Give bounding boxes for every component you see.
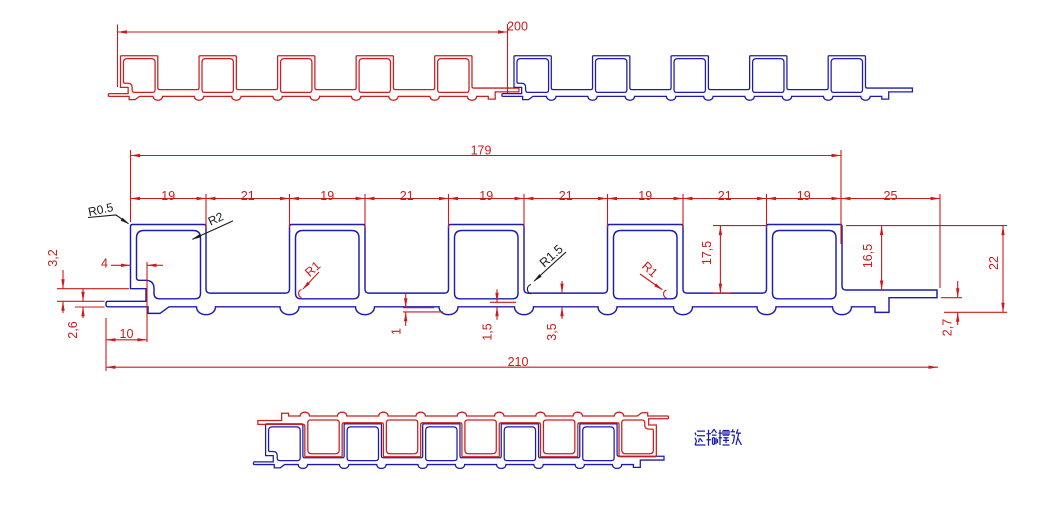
svg-text:21: 21 xyxy=(559,189,573,203)
svg-text:16,5: 16,5 xyxy=(861,244,875,268)
svg-text:3,2: 3,2 xyxy=(46,249,60,266)
svg-text:19: 19 xyxy=(479,189,493,203)
svg-text:10: 10 xyxy=(120,327,134,341)
svg-text:210: 210 xyxy=(508,355,529,369)
svg-text:19: 19 xyxy=(320,189,334,203)
svg-text:19: 19 xyxy=(638,189,652,203)
svg-text:1: 1 xyxy=(390,328,404,335)
svg-text:19: 19 xyxy=(161,189,175,203)
svg-text:21: 21 xyxy=(400,189,414,203)
svg-text:1,5: 1,5 xyxy=(481,323,495,340)
svg-text:3,5: 3,5 xyxy=(545,323,559,340)
svg-text:4: 4 xyxy=(101,257,108,271)
svg-text:19: 19 xyxy=(797,189,811,203)
svg-text:25: 25 xyxy=(884,189,898,203)
svg-text:2,6: 2,6 xyxy=(66,321,80,338)
svg-text:21: 21 xyxy=(718,189,732,203)
svg-text:200: 200 xyxy=(507,20,528,34)
svg-text:179: 179 xyxy=(471,144,492,158)
svg-text:17,5: 17,5 xyxy=(700,241,714,265)
svg-text:21: 21 xyxy=(241,189,255,203)
svg-text:2,7: 2,7 xyxy=(941,319,955,336)
svg-text:22: 22 xyxy=(987,256,1001,270)
